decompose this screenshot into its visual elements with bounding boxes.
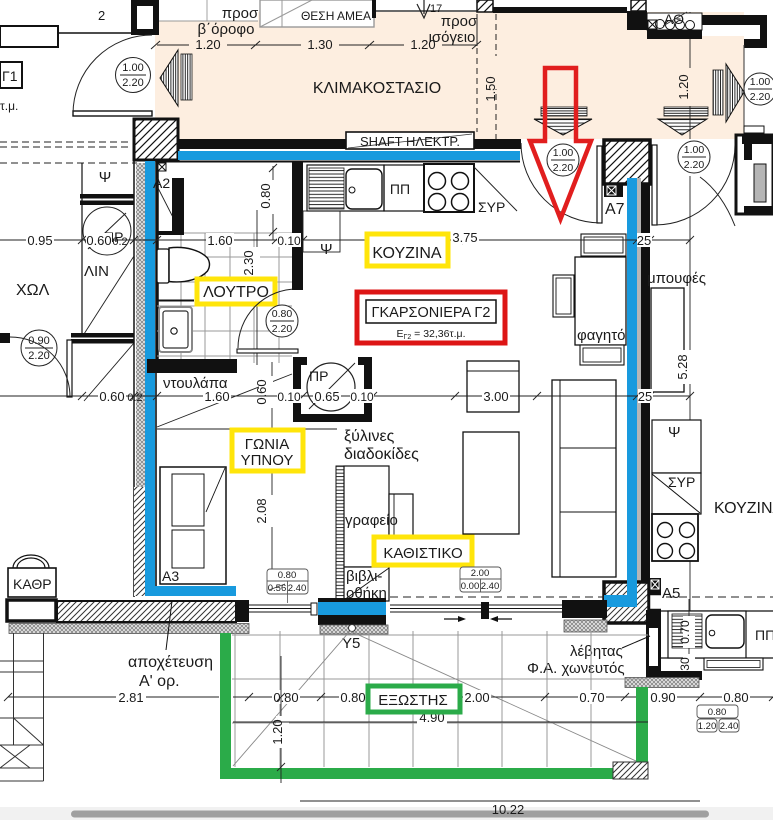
svg-text:Α7: Α7 — [605, 201, 625, 218]
svg-text:2.40: 2.40 — [288, 583, 307, 594]
svg-text:προσ: προσ — [222, 5, 259, 22]
svg-text:30: 30 — [678, 657, 692, 671]
svg-text:2.20: 2.20 — [553, 162, 574, 174]
svg-text:0.10: 0.10 — [277, 390, 301, 404]
svg-text:1.60: 1.60 — [204, 389, 229, 404]
svg-text:1.20: 1.20 — [270, 719, 285, 744]
svg-text:0.10: 0.10 — [350, 390, 374, 404]
svg-text:2.40: 2.40 — [481, 581, 500, 592]
svg-text:φαγητό: φαγητό — [577, 327, 626, 344]
svg-text:ΓΩΝΙΑ: ΓΩΝΙΑ — [245, 436, 289, 453]
svg-text:αποχέτευση: αποχέτευση — [128, 654, 213, 671]
svg-text:ΚΟΥΖΙΝΑ: ΚΟΥΖΙΝΑ — [714, 500, 773, 517]
svg-text:0.80: 0.80 — [258, 183, 273, 208]
svg-text:1.20: 1.20 — [676, 74, 691, 99]
svg-text:0.95: 0.95 — [27, 233, 52, 248]
svg-text:β΄όροφο: β΄όροφο — [198, 21, 255, 38]
svg-text:ΚΟΥΖΙΝΑ: ΚΟΥΖΙΝΑ — [372, 245, 442, 262]
svg-text:1.00: 1.00 — [122, 62, 143, 74]
svg-text:γραφείο: γραφείο — [345, 512, 398, 529]
svg-text:SHAFT ΗΛΕΚΤΡ.: SHAFT ΗΛΕΚΤΡ. — [360, 134, 460, 149]
svg-text:ΧΩΛ: ΧΩΛ — [16, 282, 50, 299]
svg-text:Ψ: Ψ — [320, 241, 333, 258]
svg-text:2.20: 2.20 — [122, 77, 143, 89]
svg-text:0.80: 0.80 — [273, 690, 298, 705]
svg-text:0.80: 0.80 — [272, 308, 293, 320]
svg-text:ΛΟΥΤΡΟ: ΛΟΥΤΡΟ — [203, 284, 269, 301]
svg-text:Α' ορ.: Α' ορ. — [139, 673, 180, 690]
svg-text:ΚΛΙΜΑΚΟΣΤΑΣΙΟ: ΚΛΙΜΑΚΟΣΤΑΣΙΟ — [313, 80, 441, 97]
svg-text:2.40: 2.40 — [720, 721, 739, 732]
svg-text:2.30: 2.30 — [241, 250, 256, 275]
svg-text:0.00: 0.00 — [461, 581, 480, 592]
svg-text:0.80: 0.80 — [278, 570, 297, 581]
svg-text:διαδοκίδες: διαδοκίδες — [344, 446, 419, 463]
svg-text:1.00: 1.00 — [750, 76, 771, 88]
svg-text:Φ.Α. χωνευτός: Φ.Α. χωνευτός — [527, 660, 625, 677]
svg-text:2.81: 2.81 — [118, 690, 143, 705]
svg-text:0.2: 0.2 — [112, 236, 127, 248]
svg-text:1.20: 1.20 — [410, 37, 435, 52]
svg-text:0.80: 0.80 — [708, 707, 727, 718]
svg-text:2.20: 2.20 — [684, 159, 705, 171]
svg-text:λέβητας: λέβητας — [570, 643, 623, 660]
svg-text:ΓΚΑΡΣΟΝΙΕΡΑ Γ2: ΓΚΑΡΣΟΝΙΕΡΑ Γ2 — [372, 305, 491, 321]
svg-text:1.60: 1.60 — [207, 233, 232, 248]
svg-text:0.70: 0.70 — [579, 690, 604, 705]
svg-text:μπουφές: μπουφές — [647, 270, 706, 287]
svg-text:2.00: 2.00 — [471, 568, 490, 579]
svg-text:ΚΑΘΡ: ΚΑΘΡ — [13, 576, 52, 592]
svg-text:0.60: 0.60 — [86, 233, 111, 248]
svg-text:1.20: 1.20 — [698, 721, 717, 732]
svg-text:Γ1: Γ1 — [2, 68, 18, 84]
svg-text:0.2: 0.2 — [127, 392, 142, 404]
svg-text:0.70: 0.70 — [678, 620, 692, 644]
svg-text:ΠΠ: ΠΠ — [390, 181, 410, 197]
svg-text:προσ: προσ — [441, 13, 478, 30]
svg-text:2.00: 2.00 — [464, 690, 489, 705]
svg-text:25: 25 — [638, 389, 652, 404]
svg-text:0.10: 0.10 — [277, 234, 301, 248]
svg-text:0.65: 0.65 — [314, 389, 339, 404]
svg-text:3.75: 3.75 — [452, 230, 477, 245]
svg-text:1.30: 1.30 — [307, 37, 332, 52]
svg-text:0.80: 0.80 — [723, 690, 748, 705]
svg-text:1.00: 1.00 — [553, 147, 574, 159]
svg-text:ΥΠΝΟΥ: ΥΠΝΟΥ — [241, 452, 294, 469]
svg-text:ΣΥΡ: ΣΥΡ — [478, 199, 505, 215]
svg-text:ΠΠ: ΠΠ — [755, 627, 773, 643]
svg-text:βιβλι-: βιβλι- — [346, 568, 382, 585]
svg-text:Α5: Α5 — [662, 585, 680, 602]
svg-text:ΛΙΝ: ΛΙΝ — [84, 263, 109, 280]
svg-text:0.60: 0.60 — [99, 389, 124, 404]
svg-text:0.80: 0.80 — [340, 690, 365, 705]
svg-text:1.20: 1.20 — [195, 37, 220, 52]
svg-text:Α3: Α3 — [162, 568, 179, 584]
svg-text:2: 2 — [98, 8, 105, 23]
svg-text:ΘΕΣΗ ΑΜΕΑ: ΘΕΣΗ ΑΜΕΑ — [301, 9, 371, 23]
svg-text:3.00: 3.00 — [483, 389, 508, 404]
svg-text:ΚΑΘΙΣΤΙΚΟ: ΚΑΘΙΣΤΙΚΟ — [383, 545, 462, 562]
svg-text:2.08: 2.08 — [254, 498, 269, 523]
svg-text:1.50: 1.50 — [483, 76, 498, 101]
svg-text:ΠΡ: ΠΡ — [309, 368, 328, 384]
svg-text:Ψ: Ψ — [668, 424, 681, 441]
svg-text:ξύλινες: ξύλινες — [344, 428, 395, 445]
svg-text:ΣΥΡ: ΣΥΡ — [668, 474, 695, 490]
svg-text:Ψ: Ψ — [99, 169, 112, 186]
svg-text:10.22: 10.22 — [492, 802, 525, 817]
svg-text:1.00: 1.00 — [684, 144, 705, 156]
svg-text:0.90: 0.90 — [650, 690, 675, 705]
svg-text:2.20: 2.20 — [272, 323, 293, 335]
svg-text:τ.μ.: τ.μ. — [0, 99, 18, 113]
svg-text:ΕΞΩΣΤΗΣ: ΕΞΩΣΤΗΣ — [378, 692, 448, 709]
svg-text:17: 17 — [430, 3, 442, 15]
svg-text:Α2: Α2 — [153, 175, 170, 191]
svg-text:2.20: 2.20 — [750, 91, 771, 103]
svg-text:25: 25 — [637, 233, 651, 248]
svg-text:0.60: 0.60 — [254, 379, 269, 404]
svg-text:5.28: 5.28 — [675, 354, 690, 379]
svg-text:2.20: 2.20 — [28, 350, 49, 362]
